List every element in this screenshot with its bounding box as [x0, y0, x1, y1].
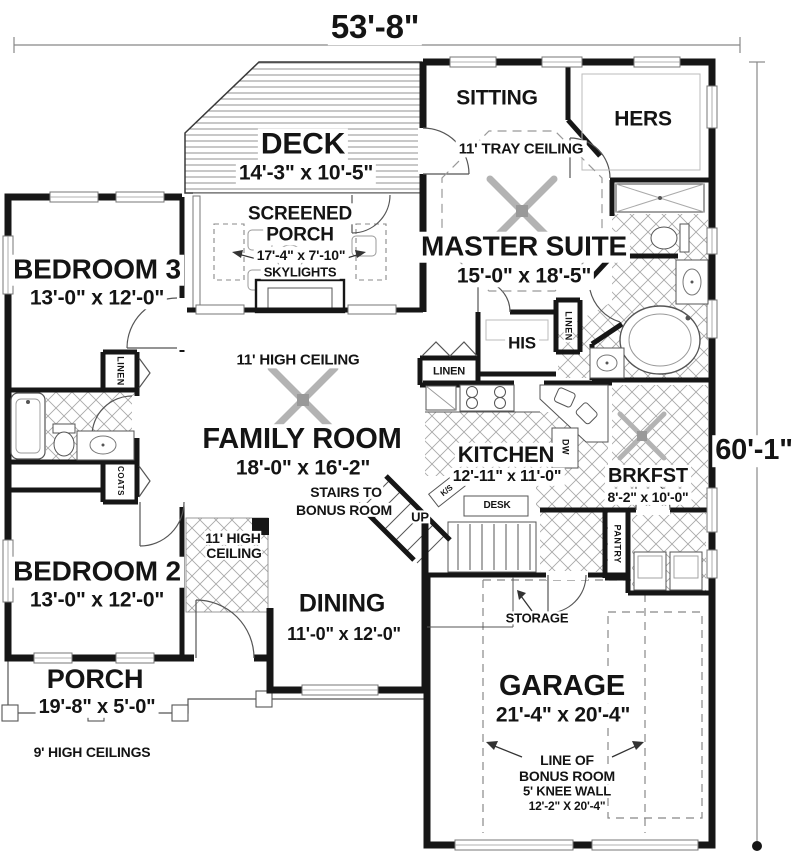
label-garage-dims: 21'-4" x 20'-4" — [493, 703, 633, 726]
master-vanity2-icon — [590, 348, 624, 378]
master-tub-icon — [620, 306, 700, 374]
label-linen-bedroom3: LINEN — [115, 355, 124, 387]
label-desk: DESK — [483, 501, 512, 511]
label-garage: GARAGE — [496, 671, 628, 703]
label-pantry: PANTRY — [612, 524, 621, 565]
label-family-room-dims: 18'-0" x 16'-2" — [233, 456, 373, 479]
label-tray-ceiling: 11' TRAY CEILING — [456, 140, 587, 157]
label-porch-ceiling-note: 9' HIGH CEILINGS — [31, 744, 154, 760]
label-kitchen: KITCHEN — [455, 443, 557, 467]
label-bonus-line3: 5' KNEE WALL — [522, 784, 612, 797]
label-master-suite: MASTER SUITE — [418, 232, 630, 263]
label-deck-dims: 14'-3" x 10'-5" — [236, 161, 376, 184]
label-kitchen-dims: 12'-11" x 11'-0" — [450, 468, 565, 486]
label-screened-porch-dims: 17'-4" x 7'-10" — [254, 247, 349, 263]
label-screened-porch-line1: SCREENED — [245, 203, 355, 224]
label-up: UP — [410, 510, 430, 523]
label-breakfast: BRKFST — [605, 465, 691, 487]
hall-bathtub-icon — [11, 393, 45, 459]
label-stairs-line2: BONUS ROOM — [295, 503, 393, 517]
label-skylights: SKYLIGHTS — [261, 264, 340, 279]
storage-leader-arrow — [517, 590, 532, 611]
refrigerator-icon — [426, 386, 456, 410]
label-porch: PORCH — [44, 665, 147, 695]
label-foyer-ceiling-line2: CEILING — [205, 546, 262, 560]
label-his-closet: HIS — [505, 333, 539, 352]
label-stairs-line1: STAIRS TO — [309, 485, 383, 499]
stove-icon — [460, 385, 514, 411]
label-bedroom3: BEDROOM 3 — [10, 255, 184, 286]
hall-toilet-icon — [53, 424, 75, 456]
label-bonus-line1: LINE OF — [539, 753, 595, 767]
shower-icon — [616, 184, 704, 212]
label-coats: COATS — [116, 465, 124, 497]
label-hers-closet: HERS — [611, 107, 675, 130]
label-bedroom3-dims: 13'-0" x 12'-0" — [27, 286, 167, 309]
label-family-ceiling: 11' HIGH CEILING — [234, 351, 363, 368]
master-vanity-icon — [676, 260, 708, 304]
label-sitting: SITTING — [453, 86, 540, 109]
understair-storage-lines — [427, 577, 513, 627]
hall-vanity-icon — [77, 431, 134, 460]
label-bedroom2: BEDROOM 2 — [10, 557, 184, 588]
fireplace-icon — [256, 280, 344, 312]
label-porch-dims: 19'-8" x 5'-0" — [36, 696, 159, 718]
label-linen-master: LINEN — [563, 310, 572, 342]
overall-width-dimension: 53'-8" — [328, 9, 422, 45]
label-storage: STORAGE — [505, 611, 570, 624]
label-foyer-ceiling-line1: 11' HIGH — [204, 531, 261, 545]
label-master-suite-dims: 15'-0" x 18'-5" — [454, 264, 594, 287]
label-bonus-line4: 12'-2" X 20'-4" — [528, 800, 607, 812]
label-dining-dims: 11'-0" x 12'-0" — [284, 624, 404, 644]
label-breakfast-dims: 8'-2" x 10'-0" — [605, 489, 692, 505]
label-screened-porch-line2: PORCH — [263, 224, 337, 245]
label-linen-hall: LINEN — [432, 366, 466, 377]
label-dishwasher: DW — [560, 438, 569, 456]
label-bonus-line2: BONUS ROOM — [518, 769, 616, 783]
overall-height-dimension: 60'-1" — [712, 435, 796, 467]
label-dining: DINING — [296, 590, 388, 618]
floor-plan: 53'-8" 60'-1" DECK 14'-3" x 10'-5" SCREE… — [0, 0, 800, 861]
label-family-room: FAMILY ROOM — [199, 424, 404, 456]
label-bedroom2-dims: 13'-0" x 12'-0" — [27, 588, 167, 611]
label-deck: DECK — [258, 129, 348, 162]
